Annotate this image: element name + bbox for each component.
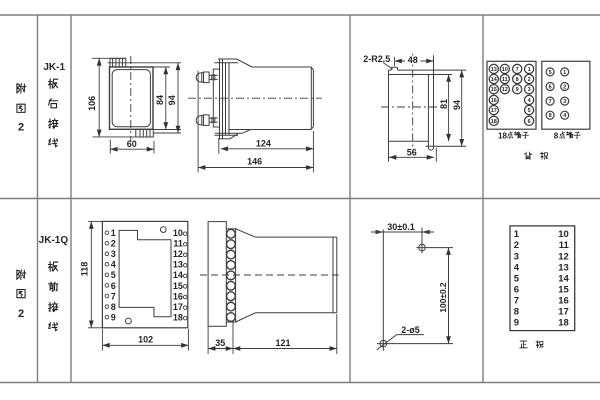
svg-text:14: 14 — [558, 273, 569, 284]
svg-text:10: 10 — [502, 67, 508, 73]
svg-text:16: 16 — [491, 98, 497, 104]
svg-text:13: 13 — [173, 260, 183, 270]
svg-text:18: 18 — [173, 312, 183, 322]
svg-text:7: 7 — [516, 67, 519, 73]
svg-text:2-R2.5: 2-R2.5 — [363, 54, 390, 64]
svg-text:12: 12 — [558, 251, 569, 262]
svg-text:118: 118 — [80, 262, 90, 277]
svg-text:6: 6 — [111, 281, 116, 291]
svg-text:2: 2 — [514, 240, 519, 251]
svg-text:106: 106 — [87, 96, 97, 111]
svg-text:5: 5 — [111, 270, 116, 280]
svg-text:100±0.2: 100±0.2 — [438, 282, 448, 313]
svg-text:7: 7 — [514, 295, 519, 306]
svg-text:15: 15 — [173, 281, 183, 291]
svg-text:10: 10 — [558, 229, 569, 240]
svg-text:12: 12 — [502, 87, 508, 93]
svg-text:17: 17 — [558, 306, 569, 317]
svg-text:11: 11 — [559, 240, 570, 251]
svg-text:18: 18 — [558, 317, 569, 328]
svg-text:2: 2 — [563, 85, 566, 91]
svg-text:2: 2 — [111, 239, 116, 249]
svg-text:8: 8 — [111, 302, 116, 312]
svg-text:9: 9 — [516, 87, 519, 93]
svg-text:8: 8 — [554, 131, 559, 140]
svg-text:60: 60 — [127, 139, 137, 149]
svg-text:13: 13 — [558, 262, 569, 273]
svg-text:56: 56 — [407, 147, 417, 157]
svg-text:3: 3 — [514, 251, 519, 262]
svg-text:146: 146 — [247, 157, 262, 167]
svg-text:14: 14 — [491, 77, 498, 83]
svg-text:3: 3 — [563, 99, 566, 105]
svg-text:9: 9 — [111, 312, 116, 322]
svg-text:48: 48 — [408, 55, 418, 65]
svg-text:30±0.1: 30±0.1 — [387, 222, 414, 232]
svg-text:JK-1: JK-1 — [43, 62, 65, 73]
svg-text:7: 7 — [111, 291, 116, 301]
svg-text:1: 1 — [514, 229, 520, 240]
svg-text:121: 121 — [275, 338, 290, 348]
svg-text:15: 15 — [491, 87, 497, 93]
svg-text:16: 16 — [173, 291, 183, 301]
svg-text:124: 124 — [256, 139, 271, 149]
svg-text:84: 84 — [155, 95, 165, 105]
svg-text:14: 14 — [173, 270, 183, 280]
svg-text:6: 6 — [549, 85, 552, 91]
svg-text:16: 16 — [558, 295, 569, 306]
svg-text:2-ø5: 2-ø5 — [401, 325, 420, 335]
svg-text:2: 2 — [528, 77, 531, 83]
svg-text:35: 35 — [215, 338, 225, 348]
svg-text:6: 6 — [528, 119, 531, 125]
svg-text:1: 1 — [111, 228, 116, 238]
svg-text:2: 2 — [18, 308, 24, 320]
svg-text:18: 18 — [491, 119, 497, 125]
svg-text:5: 5 — [514, 273, 520, 284]
svg-text:6: 6 — [514, 284, 519, 295]
svg-text:7: 7 — [549, 99, 552, 105]
svg-text:3: 3 — [528, 87, 531, 93]
svg-text:17: 17 — [173, 302, 183, 312]
svg-text:18: 18 — [498, 131, 507, 140]
svg-text:13: 13 — [491, 67, 497, 73]
svg-text:4: 4 — [111, 260, 116, 270]
svg-text:12: 12 — [173, 249, 183, 259]
svg-text:5: 5 — [549, 70, 552, 76]
svg-text:94: 94 — [452, 100, 462, 110]
svg-text:4: 4 — [514, 262, 520, 273]
svg-text:JK-1Q: JK-1Q — [39, 235, 69, 246]
svg-text:81: 81 — [439, 99, 449, 109]
svg-text:102: 102 — [138, 334, 153, 344]
svg-text:11: 11 — [173, 239, 183, 249]
svg-text:9: 9 — [514, 317, 519, 328]
svg-text:1: 1 — [528, 67, 531, 73]
svg-text:5: 5 — [528, 108, 531, 114]
svg-text:11: 11 — [502, 77, 508, 83]
svg-text:2: 2 — [18, 121, 24, 133]
svg-text:94: 94 — [167, 95, 177, 105]
svg-text:17: 17 — [491, 108, 497, 114]
svg-text:10: 10 — [173, 228, 183, 238]
svg-text:15: 15 — [558, 284, 569, 295]
svg-text:1: 1 — [563, 70, 566, 76]
svg-text:8: 8 — [514, 306, 519, 317]
svg-text:3: 3 — [111, 249, 116, 259]
svg-text:8: 8 — [549, 113, 552, 119]
svg-text:8: 8 — [516, 77, 519, 83]
